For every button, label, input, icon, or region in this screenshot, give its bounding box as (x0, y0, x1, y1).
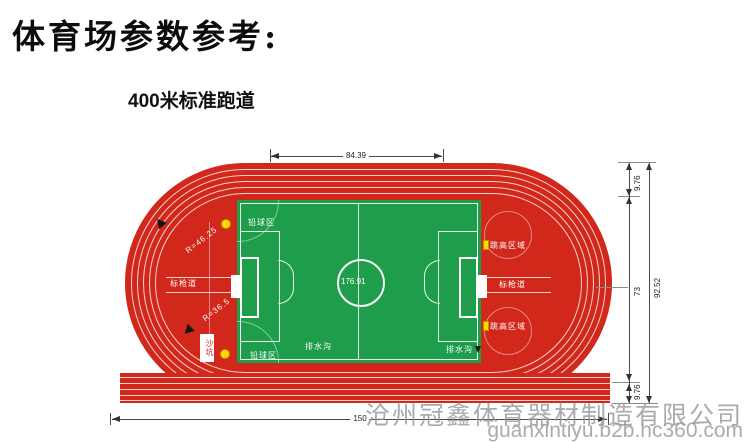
shotput-label-bottom: 铅球区 (250, 351, 277, 360)
dim-arrow-icon (626, 384, 632, 391)
penalty-arc-right (424, 260, 440, 304)
dim-arrow-icon (626, 163, 632, 170)
javelin-runway-line (481, 292, 551, 293)
yellow-marker-icon (221, 219, 231, 229)
sprint-lane-line (120, 377, 610, 378)
sandpit-box: 沙坑 (200, 334, 214, 362)
highjump-marker-icon (483, 321, 489, 331)
sandpit-label: 沙坑 (205, 339, 214, 357)
dim-arrow-icon (626, 189, 632, 196)
highjump-marker-icon (483, 240, 489, 250)
center-length-label: 176.91 (341, 277, 365, 286)
yellow-marker-icon (220, 349, 230, 359)
javelin-label-right: 标枪道 (499, 280, 526, 289)
drain-marker-icon (475, 346, 481, 353)
track-width-top-value: 9.76 (633, 175, 642, 191)
drain-label-center: 排水沟 (305, 342, 332, 351)
diagram-title: 400米标准跑道 (128, 86, 255, 113)
dim-arrow-icon (271, 153, 279, 159)
goal-area-right (459, 257, 478, 318)
dim-arrow-icon (626, 374, 632, 381)
stadium-parameter-page: 体育场参数参考: 400米标准跑道 (0, 0, 749, 443)
javelin-label-left: 标枪道 (170, 279, 197, 288)
dim-tick (443, 149, 444, 162)
goal-area-left (240, 257, 259, 318)
goal-left (231, 275, 241, 298)
highjump-label-bottom: 跳高区域 (490, 322, 526, 331)
highjump-fan-arc (484, 307, 532, 355)
dim-arrow-icon (434, 153, 442, 159)
sprint-lane-line (120, 383, 610, 384)
overall-height-value: 92.52 (653, 278, 662, 298)
dim-arrow-icon (112, 416, 120, 422)
infield-height-value: 73 (633, 287, 642, 296)
page-title: 体育场参数参考: (12, 10, 279, 58)
shotput-label-top: 铅球区 (248, 218, 275, 227)
drain-label-right: 排水沟 (446, 345, 473, 354)
javelin-runway-line (166, 277, 237, 278)
dim-arrow-icon (646, 163, 652, 170)
javelin-runway-line (481, 277, 551, 278)
dim-ext-line (612, 382, 640, 383)
dim-tick (110, 413, 111, 425)
dim-line-right-outer (649, 163, 650, 403)
sprint-lane-line (120, 389, 610, 390)
javelin-runway-line (166, 292, 237, 293)
watermark-url: guanxintiyu.b2b.hc360.com (487, 419, 743, 443)
straight-length-value: 84.39 (343, 151, 369, 160)
dim-arrow-icon (626, 197, 632, 204)
highjump-fan-arc (484, 211, 532, 259)
goal-right (477, 275, 487, 298)
dzone-boundary-line (209, 222, 210, 352)
dim-ext-line (596, 287, 628, 288)
highjump-label-top: 跳高区域 (490, 241, 526, 250)
